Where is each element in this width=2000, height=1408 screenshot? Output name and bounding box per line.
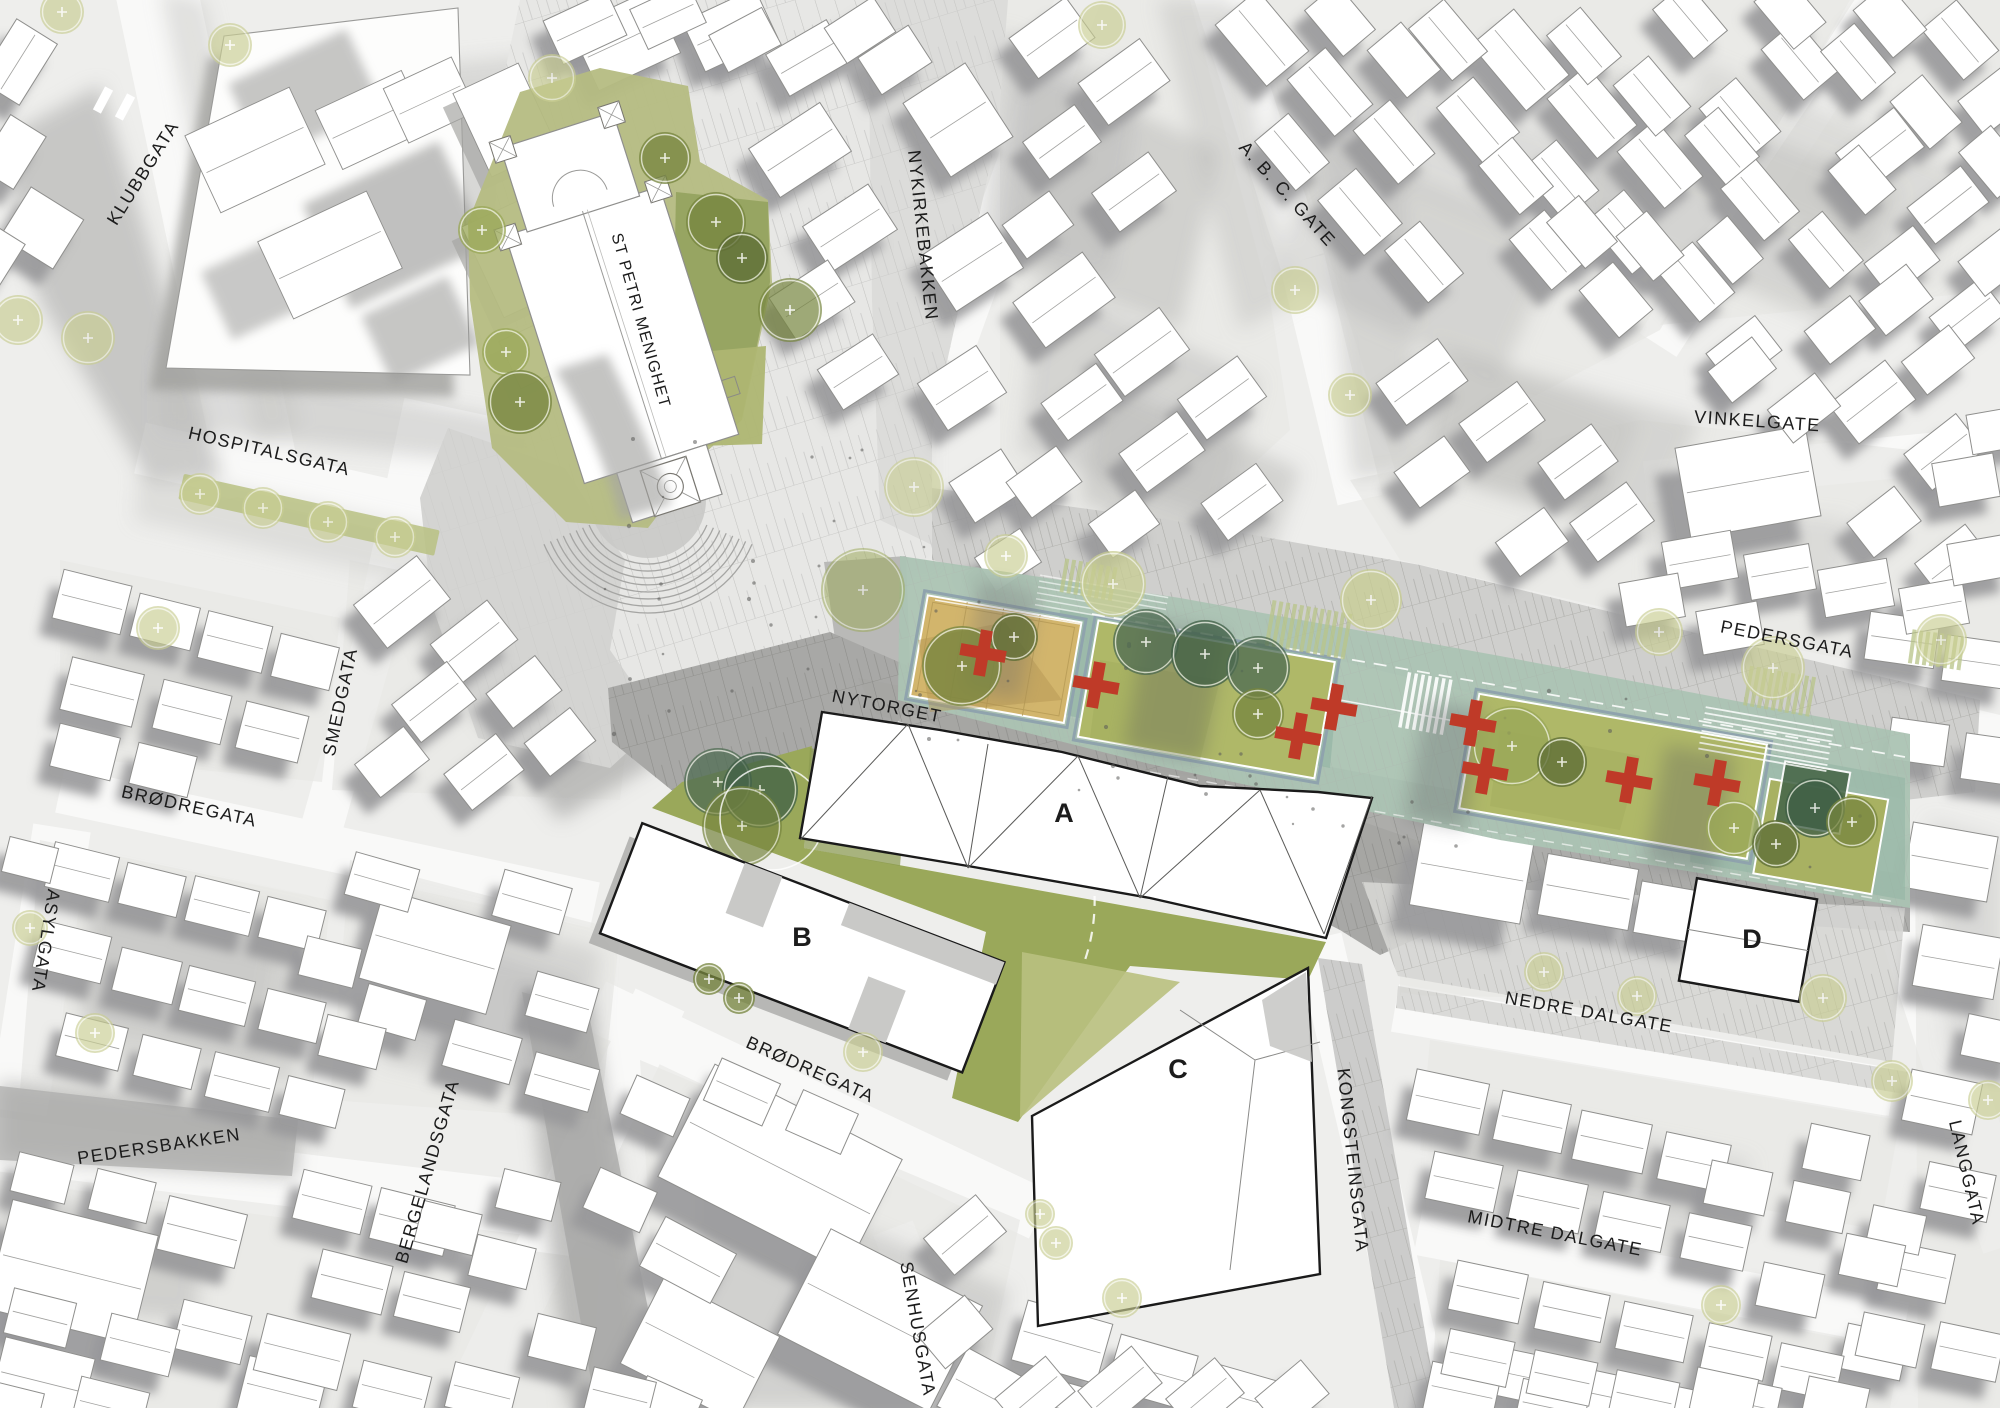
svg-text:A: A [1054,798,1074,828]
svg-text:C: C [1168,1054,1188,1084]
svg-text:D: D [1742,924,1762,954]
svg-text:B: B [792,922,812,952]
